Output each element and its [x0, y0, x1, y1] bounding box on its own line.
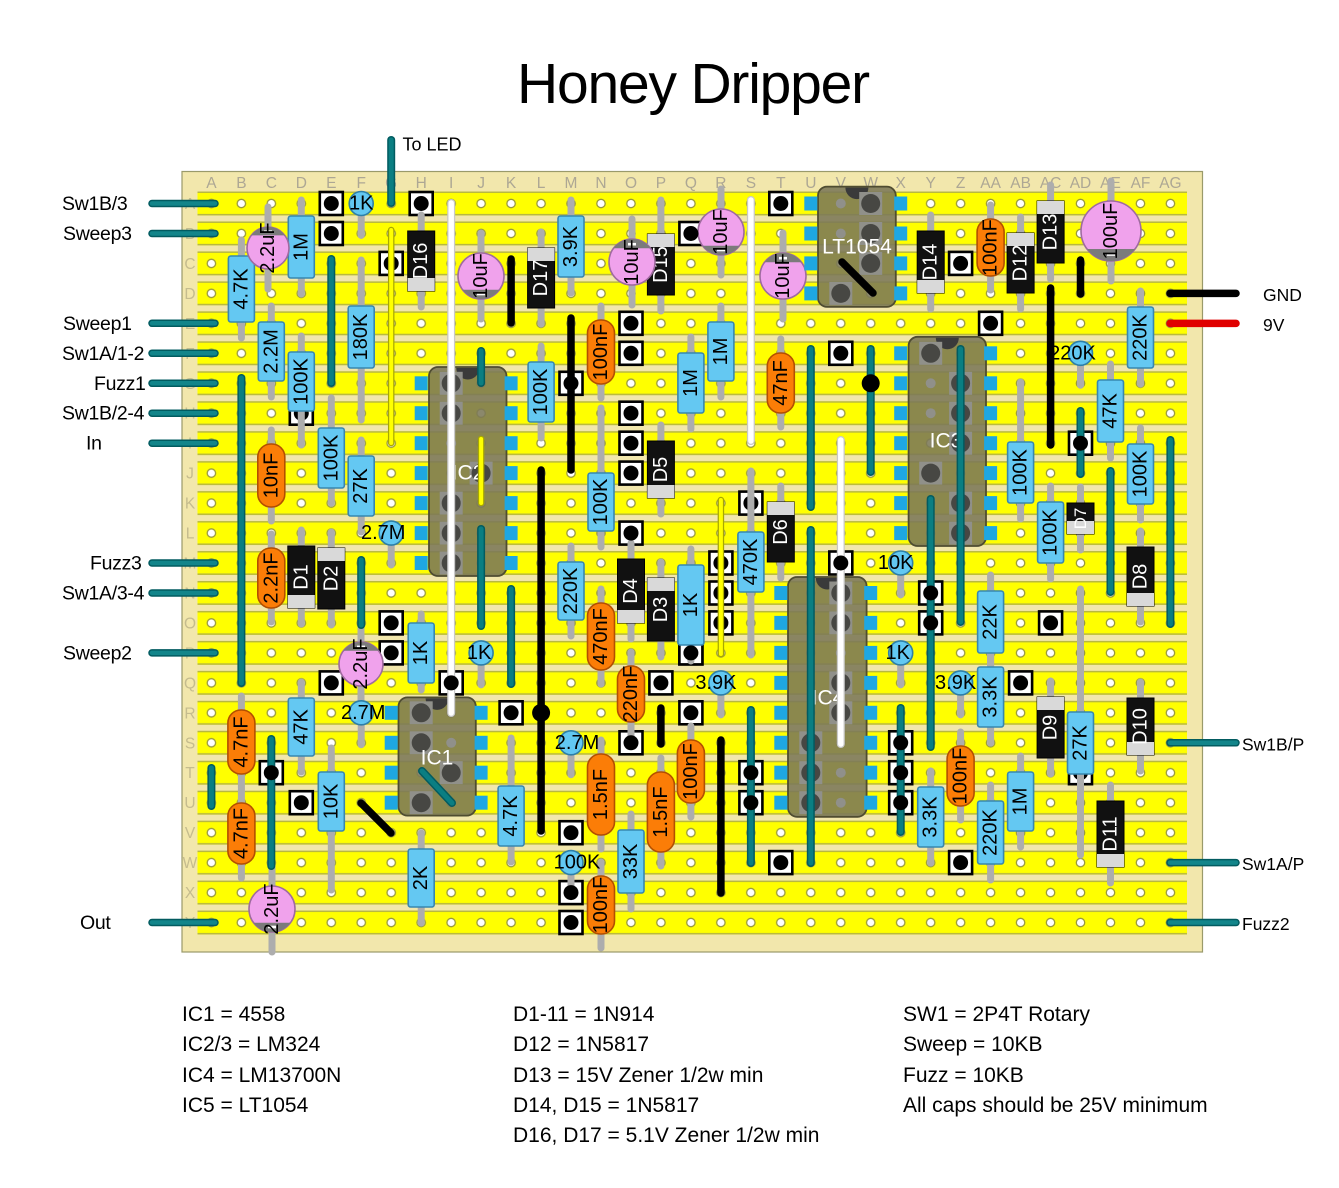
svg-text:Fuzz = 10KB: Fuzz = 10KB	[903, 1064, 1024, 1087]
svg-text:GND: GND	[1263, 285, 1302, 305]
svg-text:D1-11 = 1N914: D1-11 = 1N914	[513, 1003, 655, 1026]
svg-text:3.9K: 3.9K	[695, 672, 737, 694]
svg-text:10uF: 10uF	[772, 253, 794, 299]
svg-text:47nF: 47nF	[770, 360, 792, 406]
svg-text:4.7K: 4.7K	[500, 795, 522, 837]
svg-text:1M: 1M	[710, 338, 732, 366]
svg-text:47K: 47K	[290, 709, 312, 745]
svg-text:D3: D3	[650, 597, 672, 623]
svg-text:T: T	[776, 175, 786, 192]
svg-text:L: L	[537, 175, 546, 192]
svg-text:100K: 100K	[290, 357, 312, 404]
svg-text:S: S	[746, 175, 756, 192]
svg-text:220K: 220K	[1130, 313, 1152, 360]
svg-text:AF: AF	[1131, 175, 1151, 192]
svg-text:To LED: To LED	[403, 135, 462, 155]
svg-text:A: A	[206, 175, 217, 192]
svg-text:C: C	[266, 175, 277, 192]
svg-text:U: U	[805, 175, 816, 192]
svg-text:10K: 10K	[320, 783, 342, 819]
svg-text:9V: 9V	[1263, 315, 1285, 335]
svg-text:Sw1B/P: Sw1B/P	[1242, 734, 1304, 754]
svg-text:D8: D8	[1130, 564, 1152, 590]
svg-text:D1: D1	[290, 564, 312, 590]
svg-text:X: X	[896, 175, 907, 192]
svg-text:100K: 100K	[1040, 508, 1062, 555]
svg-text:D6: D6	[770, 519, 792, 545]
svg-text:S: S	[185, 735, 195, 752]
svg-text:100nF: 100nF	[590, 324, 612, 381]
svg-text:Q: Q	[184, 675, 196, 692]
svg-text:33K: 33K	[620, 843, 642, 879]
svg-text:Fuzz2: Fuzz2	[1242, 914, 1290, 934]
svg-text:3.9K: 3.9K	[560, 225, 582, 267]
svg-text:Fuzz1: Fuzz1	[94, 373, 146, 395]
svg-text:220nF: 220nF	[620, 666, 642, 723]
svg-text:4.7nF: 4.7nF	[230, 716, 252, 767]
svg-text:D: D	[296, 175, 307, 192]
svg-text:100uF: 100uF	[1100, 203, 1122, 260]
svg-text:U: U	[184, 795, 195, 812]
svg-text:In: In	[86, 433, 102, 455]
svg-text:100nF: 100nF	[590, 877, 612, 934]
svg-text:D13: D13	[1040, 214, 1062, 251]
svg-text:100K: 100K	[1130, 450, 1152, 497]
svg-text:D17: D17	[530, 260, 552, 297]
svg-text:D4: D4	[620, 578, 642, 604]
svg-text:D9: D9	[1040, 715, 1062, 741]
svg-text:Out: Out	[80, 912, 111, 934]
svg-text:Sw1A/P: Sw1A/P	[1242, 854, 1304, 874]
svg-text:1K: 1K	[410, 640, 432, 665]
svg-text:IC2/3 = LM324: IC2/3 = LM324	[182, 1033, 321, 1056]
svg-text:100K: 100K	[530, 368, 552, 415]
svg-text:Sweep2: Sweep2	[63, 642, 132, 664]
svg-text:J: J	[477, 175, 485, 192]
svg-text:2.2uF: 2.2uF	[350, 638, 372, 689]
svg-text:Sw1B/3: Sw1B/3	[62, 193, 127, 215]
svg-text:Z: Z	[956, 175, 965, 192]
svg-text:D12 = 1N5817: D12 = 1N5817	[513, 1033, 649, 1056]
svg-text:AA: AA	[980, 175, 1001, 192]
svg-text:3.3K: 3.3K	[920, 796, 942, 838]
svg-text:3.9K: 3.9K	[935, 672, 977, 694]
svg-text:V: V	[185, 825, 196, 842]
svg-text:1K: 1K	[349, 193, 374, 215]
svg-text:E: E	[326, 175, 336, 192]
svg-text:D11: D11	[1100, 816, 1122, 851]
svg-text:1K: 1K	[680, 592, 702, 617]
svg-text:100nF: 100nF	[680, 743, 702, 800]
svg-text:10nF: 10nF	[260, 453, 282, 499]
svg-text:W: W	[183, 855, 198, 872]
svg-text:AD: AD	[1070, 175, 1092, 192]
svg-text:IC1 = 4558: IC1 = 4558	[182, 1003, 285, 1026]
svg-text:I: I	[449, 175, 453, 192]
svg-text:1.5nF: 1.5nF	[590, 769, 612, 820]
svg-text:Sw1A/1-2: Sw1A/1-2	[62, 343, 144, 365]
svg-text:Sw1A/3-4: Sw1A/3-4	[62, 583, 145, 605]
svg-text:3.3K: 3.3K	[980, 676, 1002, 718]
svg-text:100K: 100K	[1010, 448, 1032, 495]
svg-text:C: C	[184, 256, 195, 273]
svg-text:2.2nF: 2.2nF	[260, 552, 282, 603]
svg-text:1M: 1M	[680, 369, 702, 397]
svg-text:Fuzz3: Fuzz3	[90, 553, 142, 575]
svg-text:Sweep = 10KB: Sweep = 10KB	[903, 1033, 1043, 1056]
svg-text:D: D	[184, 286, 195, 303]
svg-text:220K: 220K	[560, 567, 582, 614]
svg-text:100K: 100K	[554, 852, 601, 874]
svg-text:X: X	[185, 885, 196, 902]
svg-text:1M: 1M	[290, 233, 312, 261]
svg-text:N: N	[595, 175, 606, 192]
svg-text:SW1 = 2P4T Rotary: SW1 = 2P4T Rotary	[903, 1003, 1090, 1026]
svg-text:L: L	[186, 526, 195, 543]
svg-text:10uF: 10uF	[621, 239, 643, 285]
svg-text:220K: 220K	[980, 808, 1002, 855]
svg-text:2.7M: 2.7M	[361, 522, 405, 544]
svg-text:O: O	[625, 175, 637, 192]
svg-text:D16, D17 = 5.1V Zener 1/2w min: D16, D17 = 5.1V Zener 1/2w min	[513, 1124, 819, 1147]
svg-text:H: H	[416, 175, 427, 192]
svg-text:1K: 1K	[467, 642, 492, 664]
svg-text:100K: 100K	[590, 478, 612, 525]
svg-text:IC5 = LT1054: IC5 = LT1054	[182, 1094, 309, 1117]
svg-text:Sw1B/2-4: Sw1B/2-4	[62, 403, 145, 425]
svg-text:Sweep3: Sweep3	[63, 223, 132, 245]
svg-text:2.2uF: 2.2uF	[257, 222, 279, 273]
svg-text:470K: 470K	[740, 538, 762, 585]
svg-text:O: O	[184, 615, 196, 632]
svg-text:D10: D10	[1130, 708, 1152, 745]
svg-text:2.2uF: 2.2uF	[261, 883, 283, 934]
svg-text:J: J	[186, 466, 194, 483]
svg-text:Y: Y	[926, 175, 936, 192]
svg-text:IC4 = LM13700N: IC4 = LM13700N	[182, 1064, 341, 1087]
svg-text:AG: AG	[1159, 175, 1181, 192]
svg-text:10uF: 10uF	[470, 253, 492, 299]
svg-text:K: K	[185, 496, 196, 513]
svg-text:2.7M: 2.7M	[555, 732, 599, 754]
svg-text:B: B	[236, 175, 246, 192]
svg-text:470nF: 470nF	[590, 608, 612, 665]
svg-text:47K: 47K	[1100, 393, 1122, 429]
svg-text:4.7K: 4.7K	[230, 268, 252, 310]
svg-text:All caps should be 25V minimum: All caps should be 25V minimum	[903, 1094, 1208, 1117]
svg-text:Q: Q	[685, 175, 697, 192]
svg-text:D2: D2	[320, 566, 342, 592]
svg-text:R: R	[184, 705, 195, 722]
svg-text:1.5nF: 1.5nF	[650, 786, 672, 837]
svg-text:10uF: 10uF	[710, 209, 732, 255]
svg-text:Honey Dripper: Honey Dripper	[517, 52, 870, 116]
svg-text:22K: 22K	[980, 604, 1002, 640]
svg-text:AB: AB	[1010, 175, 1031, 192]
svg-text:180K: 180K	[350, 313, 372, 360]
svg-text:D5: D5	[650, 457, 672, 483]
svg-text:T: T	[185, 765, 195, 782]
svg-text:2.2M: 2.2M	[260, 329, 282, 373]
svg-text:4.7nF: 4.7nF	[230, 808, 252, 859]
svg-text:M: M	[565, 175, 578, 192]
svg-text:D13 = 15V Zener 1/2w min: D13 = 15V Zener 1/2w min	[513, 1064, 763, 1087]
svg-text:D16: D16	[410, 243, 432, 280]
svg-text:27K: 27K	[350, 468, 372, 504]
svg-text:D7: D7	[1071, 508, 1090, 530]
svg-text:100K: 100K	[320, 434, 342, 481]
svg-text:F: F	[356, 175, 365, 192]
svg-text:10K: 10K	[878, 552, 914, 574]
svg-text:27K: 27K	[1070, 725, 1092, 761]
svg-text:D12: D12	[1010, 245, 1032, 282]
svg-text:IC1: IC1	[421, 747, 454, 770]
svg-text:K: K	[506, 175, 517, 192]
svg-text:1K: 1K	[885, 642, 910, 664]
svg-text:D14: D14	[920, 244, 942, 281]
svg-text:100nF: 100nF	[950, 748, 972, 805]
svg-text:Sweep1: Sweep1	[63, 313, 132, 335]
svg-text:P: P	[656, 175, 666, 192]
svg-text:1M: 1M	[1010, 788, 1032, 816]
svg-text:2K: 2K	[410, 865, 432, 890]
svg-text:220K: 220K	[1049, 342, 1096, 364]
svg-text:LT1054: LT1054	[822, 236, 892, 259]
svg-text:2.7M: 2.7M	[341, 702, 385, 724]
svg-text:100nF: 100nF	[980, 219, 1002, 276]
svg-text:D14, D15 = 1N5817: D14, D15 = 1N5817	[513, 1094, 699, 1117]
